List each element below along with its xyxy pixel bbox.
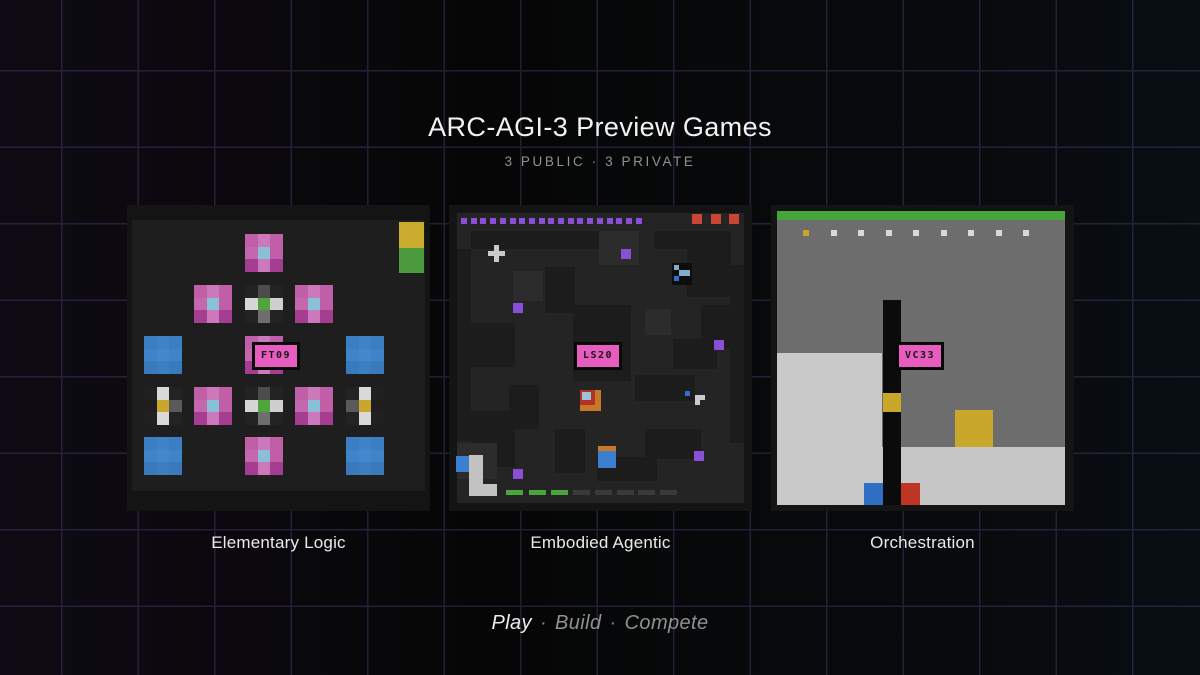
energy-dot [607, 218, 613, 224]
progress-dash-filled [551, 490, 568, 495]
wall-patch [635, 375, 695, 401]
progress-dash-empty [617, 490, 634, 495]
game-card-embodied-agentic[interactable]: LS20 Embodied Agentic [449, 205, 752, 570]
flower-tile [295, 285, 333, 323]
tagline-play: Play [491, 612, 532, 634]
tagline-build: Build [555, 612, 601, 634]
game-card-elementary-logic[interactable]: FT09 Elementary Logic [127, 205, 430, 570]
energy-dot [490, 218, 496, 224]
white-l-foot [469, 484, 497, 496]
game-title: Elementary Logic [127, 533, 430, 553]
energy-dot [529, 218, 535, 224]
game-board-orchestration[interactable]: VC33 [771, 205, 1074, 511]
life-square [729, 214, 739, 224]
tagline-compete: Compete [625, 612, 709, 634]
status-dot [1023, 230, 1029, 236]
yellow-crate [955, 410, 993, 447]
white-l-vertical [469, 455, 483, 484]
blue-block [864, 483, 883, 505]
cross-tile [245, 387, 283, 425]
energy-dot [577, 218, 583, 224]
red-block [901, 483, 920, 505]
floor-highlight [645, 309, 671, 335]
game-code-badge: VC33 [896, 342, 944, 370]
tagline-separator: · [540, 612, 547, 634]
blue-tile [144, 336, 182, 374]
purple-pickup [694, 451, 704, 461]
game-code-badge: FT09 [252, 342, 300, 370]
status-dot [913, 230, 919, 236]
status-dot [831, 230, 837, 236]
game-title: Embodied Agentic [449, 533, 752, 553]
white-corner-glyph [690, 395, 705, 410]
status-dot [803, 230, 809, 236]
progress-dash-filled [529, 490, 546, 495]
energy-dot [587, 218, 593, 224]
energy-dot [471, 218, 477, 224]
player-blue [456, 456, 470, 472]
energy-dot [568, 218, 574, 224]
purple-pickup [513, 303, 523, 313]
energy-dot [636, 218, 642, 224]
tagline-separator: · [610, 612, 617, 634]
purple-pickup [714, 340, 724, 350]
yellow-key-tile [144, 387, 182, 425]
purple-pickup [513, 469, 523, 479]
wall-patch [687, 231, 731, 297]
game-card-orchestration[interactable]: VC33 Orchestration [771, 205, 1074, 570]
status-dot [858, 230, 864, 236]
flower-tile [194, 387, 232, 425]
energy-dot [616, 218, 622, 224]
game-title: Orchestration [771, 533, 1074, 553]
status-dot [941, 230, 947, 236]
status-dot [886, 230, 892, 236]
life-square [711, 214, 721, 224]
yellow-key-tile [346, 387, 384, 425]
energy-dot [480, 218, 486, 224]
purple-pickup [621, 249, 631, 259]
cyan-glyph [674, 265, 690, 281]
energy-dot [539, 218, 545, 224]
status-dot [968, 230, 974, 236]
tagline: Play·Build·Compete [0, 612, 1200, 635]
stack-block-green [399, 248, 424, 273]
progress-dash-empty [573, 490, 590, 495]
wall-patch [730, 265, 744, 443]
energy-dot [558, 218, 564, 224]
stack-block-yellow [399, 222, 424, 248]
energy-dot [548, 218, 554, 224]
progress-dash-empty [595, 490, 612, 495]
energy-dot [500, 218, 506, 224]
page-title: ARC-AGI-3 Preview Games [0, 112, 1200, 143]
flower-tile [245, 437, 283, 475]
flower-tile [245, 234, 283, 272]
blue-tile [346, 437, 384, 475]
flower-tile [295, 387, 333, 425]
wall-patch [673, 339, 717, 369]
flower-tile [194, 285, 232, 323]
energy-dot [510, 218, 516, 224]
progress-dash-empty [638, 490, 655, 495]
blue-tile [144, 437, 182, 475]
energy-dot [597, 218, 603, 224]
wall-patch [457, 249, 471, 441]
energy-dot [461, 218, 467, 224]
top-green-bar [777, 211, 1065, 220]
wall-patch [555, 429, 585, 473]
status-dot [996, 230, 1002, 236]
progress-dash-empty [660, 490, 677, 495]
wall-patch [645, 429, 701, 459]
yellow-on-column [883, 393, 901, 412]
wall-patch [545, 267, 575, 313]
floor-highlight [599, 231, 639, 265]
games-count-subtitle: 3 PUBLIC · 3 PRIVATE [0, 154, 1200, 169]
game-code-badge: LS20 [574, 342, 622, 370]
progress-dash-filled [506, 490, 523, 495]
game-board-elementary-logic[interactable]: FT09 [127, 205, 430, 511]
energy-dot [626, 218, 632, 224]
game-board-embodied-agentic[interactable]: LS20 [449, 205, 752, 511]
plus-pickup [488, 245, 505, 262]
life-square [692, 214, 702, 224]
wall-patch [471, 323, 515, 367]
cross-tile [245, 285, 283, 323]
energy-dot [519, 218, 525, 224]
blue-tile [346, 336, 384, 374]
layered-chest-blue [582, 392, 591, 400]
crate-blue [598, 451, 616, 468]
floor-highlight [513, 271, 543, 301]
